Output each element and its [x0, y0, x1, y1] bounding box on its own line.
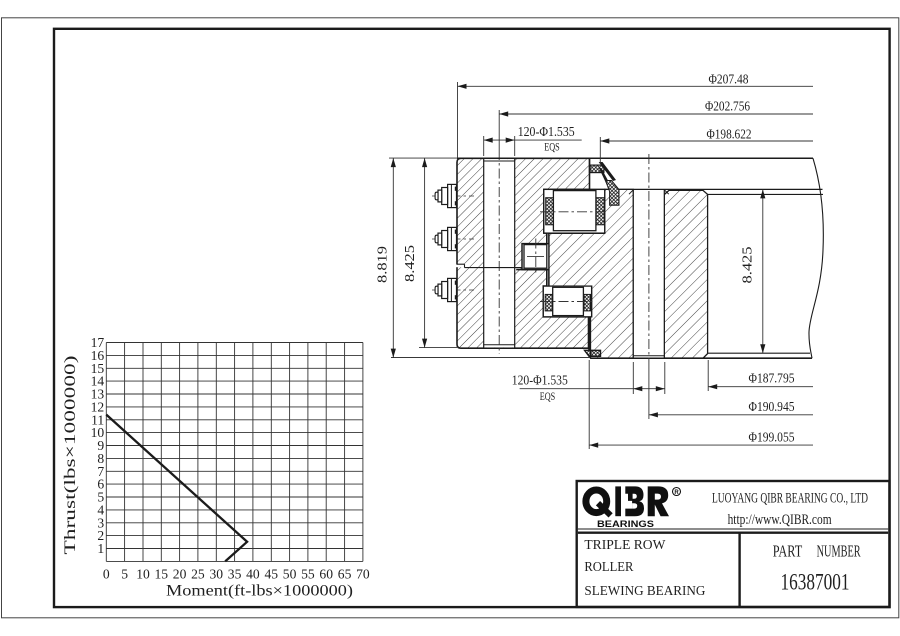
svg-text:15: 15	[155, 567, 169, 582]
svg-text:http://www.QIBR.com: http://www.QIBR.com	[728, 512, 832, 528]
svg-text:10: 10	[91, 425, 105, 440]
svg-text:14: 14	[91, 374, 105, 389]
svg-text:BEARINGS: BEARINGS	[597, 519, 655, 530]
svg-text:35: 35	[228, 567, 242, 582]
svg-text:3: 3	[97, 515, 104, 530]
svg-text:Moment(ft-lbs×1000000): Moment(ft-lbs×1000000)	[166, 583, 353, 600]
svg-text:45: 45	[265, 567, 279, 582]
svg-text:15: 15	[91, 361, 105, 376]
svg-text:8: 8	[97, 451, 104, 466]
svg-text:5: 5	[97, 490, 104, 505]
svg-text:R: R	[674, 490, 679, 496]
svg-text:50: 50	[283, 567, 297, 582]
svg-text:70: 70	[356, 567, 370, 582]
svg-text:SLEWING BEARING: SLEWING BEARING	[584, 584, 705, 599]
svg-text:65: 65	[338, 567, 352, 582]
svg-text:40: 40	[246, 567, 260, 582]
svg-text:Φ187.795: Φ187.795	[749, 372, 795, 387]
svg-text:Φ199.055: Φ199.055	[749, 431, 795, 446]
svg-text:EQS: EQS	[544, 141, 560, 153]
svg-text:LUOYANG QIBR BEARING CO., LTD: LUOYANG QIBR BEARING CO., LTD	[712, 490, 868, 506]
svg-text:0: 0	[103, 567, 110, 582]
svg-text:Φ190.945: Φ190.945	[749, 400, 795, 415]
svg-text:25: 25	[191, 567, 205, 582]
svg-text:NUMBER: NUMBER	[817, 542, 861, 561]
svg-text:55: 55	[301, 567, 315, 582]
svg-text:Φ198.622: Φ198.622	[707, 127, 752, 142]
svg-text:TRIPLE ROW: TRIPLE ROW	[584, 538, 666, 553]
svg-text:60: 60	[319, 567, 333, 582]
svg-text:16: 16	[91, 348, 105, 363]
svg-text:1: 1	[97, 541, 104, 556]
svg-text:6: 6	[97, 477, 104, 492]
svg-text:11: 11	[91, 412, 104, 427]
svg-text:13: 13	[91, 387, 105, 402]
svg-text:EQS: EQS	[540, 391, 556, 403]
svg-text:7: 7	[97, 464, 104, 479]
svg-text:16387001: 16387001	[781, 569, 850, 594]
svg-text:8.425: 8.425	[741, 247, 756, 284]
svg-text:30: 30	[210, 567, 224, 582]
svg-text:5: 5	[121, 567, 128, 582]
svg-text:120-Φ1.535: 120-Φ1.535	[512, 374, 568, 389]
svg-text:4: 4	[97, 503, 104, 518]
svg-text:Φ202.756: Φ202.756	[705, 100, 750, 115]
svg-text:PART: PART	[773, 542, 803, 561]
svg-text:120-Φ1.535: 120-Φ1.535	[518, 125, 575, 140]
svg-text:20: 20	[173, 567, 187, 582]
svg-text:8.819: 8.819	[376, 246, 391, 283]
svg-text:10: 10	[136, 567, 150, 582]
svg-text:12: 12	[91, 400, 105, 415]
svg-text:ROLLER: ROLLER	[584, 560, 634, 575]
svg-text:17: 17	[91, 335, 105, 350]
svg-text:9: 9	[97, 438, 104, 453]
svg-text:2: 2	[97, 528, 104, 543]
svg-text:Thrust(lbs×1000000): Thrust(lbs×1000000)	[62, 356, 79, 555]
svg-text:8.425: 8.425	[403, 245, 418, 282]
svg-text:Φ207.48: Φ207.48	[709, 73, 749, 88]
